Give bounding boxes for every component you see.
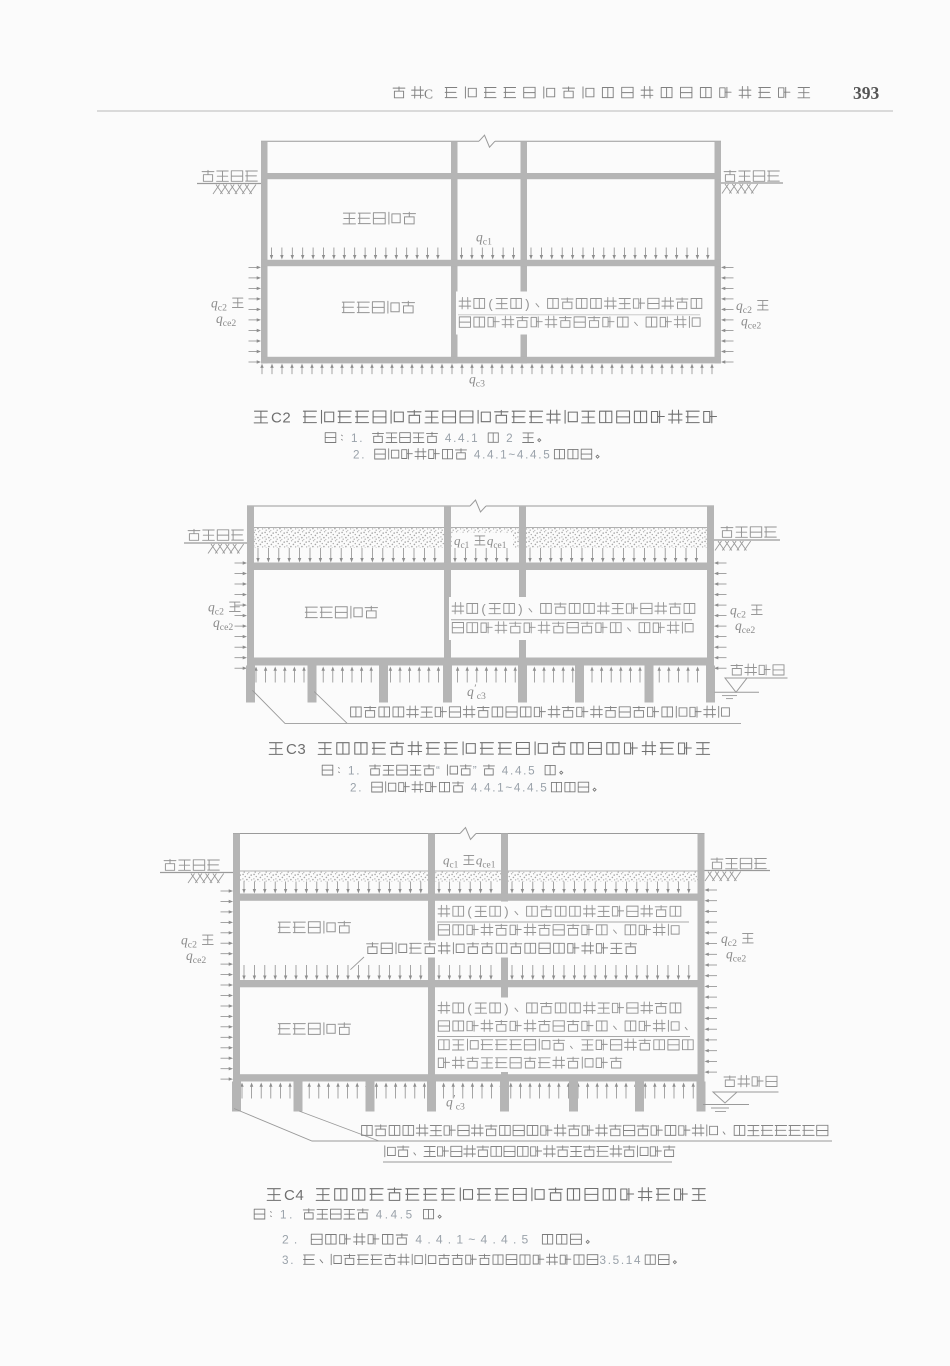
svg-text:c3: c3	[476, 379, 485, 390]
svg-text:2.: 2.	[350, 781, 363, 794]
svg-text:c3: c3	[456, 1102, 465, 1113]
svg-text:1.: 1.	[348, 764, 361, 777]
svg-text:4.4.5: 4.4.5	[502, 764, 537, 777]
svg-text:C3: C3	[286, 741, 306, 758]
svg-text:”: ”	[473, 764, 479, 777]
svg-text:4.4.1~4.4.5: 4.4.1~4.4.5	[474, 448, 552, 461]
svg-text:2.: 2.	[282, 1233, 303, 1247]
svg-text:(: (	[481, 601, 486, 616]
svg-text:2: 2	[506, 432, 514, 445]
svg-text:ce2: ce2	[193, 955, 207, 966]
svg-text:“: “	[436, 764, 442, 777]
svg-text:): )	[518, 601, 522, 616]
svg-text:ce1: ce1	[482, 861, 495, 871]
svg-text:): )	[525, 296, 529, 311]
svg-text:ce2: ce2	[223, 318, 237, 329]
svg-text:): )	[504, 1001, 508, 1016]
svg-text:C2: C2	[271, 410, 291, 427]
svg-text:ce2: ce2	[748, 321, 762, 332]
svg-text:(: (	[467, 1001, 472, 1016]
svg-text:1.: 1.	[351, 432, 364, 445]
svg-text:(: (	[467, 904, 472, 919]
svg-text:ce2: ce2	[733, 954, 747, 965]
svg-text:c1: c1	[483, 237, 492, 248]
svg-text:C4: C4	[284, 1187, 304, 1204]
svg-text:c1: c1	[450, 861, 459, 871]
svg-text:q: q	[467, 684, 474, 699]
svg-text:4.4.5: 4.4.5	[376, 1208, 415, 1221]
svg-text:4.4.1~4.4.5: 4.4.1~4.4.5	[471, 781, 549, 794]
svg-text:2.: 2.	[353, 448, 366, 461]
svg-text:393: 393	[853, 83, 880, 103]
svg-text:): )	[504, 904, 508, 919]
svg-text:1.: 1.	[280, 1208, 295, 1221]
svg-text:4.4.1: 4.4.1	[445, 432, 480, 445]
svg-text:3.: 3.	[282, 1254, 295, 1267]
svg-text:4.4.1~4.4.5: 4.4.1~4.4.5	[415, 1233, 533, 1247]
svg-text:ce2: ce2	[742, 625, 756, 636]
svg-text:(: (	[488, 296, 493, 311]
svg-text:3.5.14: 3.5.14	[600, 1254, 643, 1267]
svg-text:ce1: ce1	[493, 541, 506, 551]
svg-text:c3: c3	[477, 691, 486, 702]
svg-text:ce2: ce2	[220, 622, 234, 633]
svg-text:C: C	[424, 87, 433, 102]
svg-text:q: q	[446, 1095, 453, 1110]
